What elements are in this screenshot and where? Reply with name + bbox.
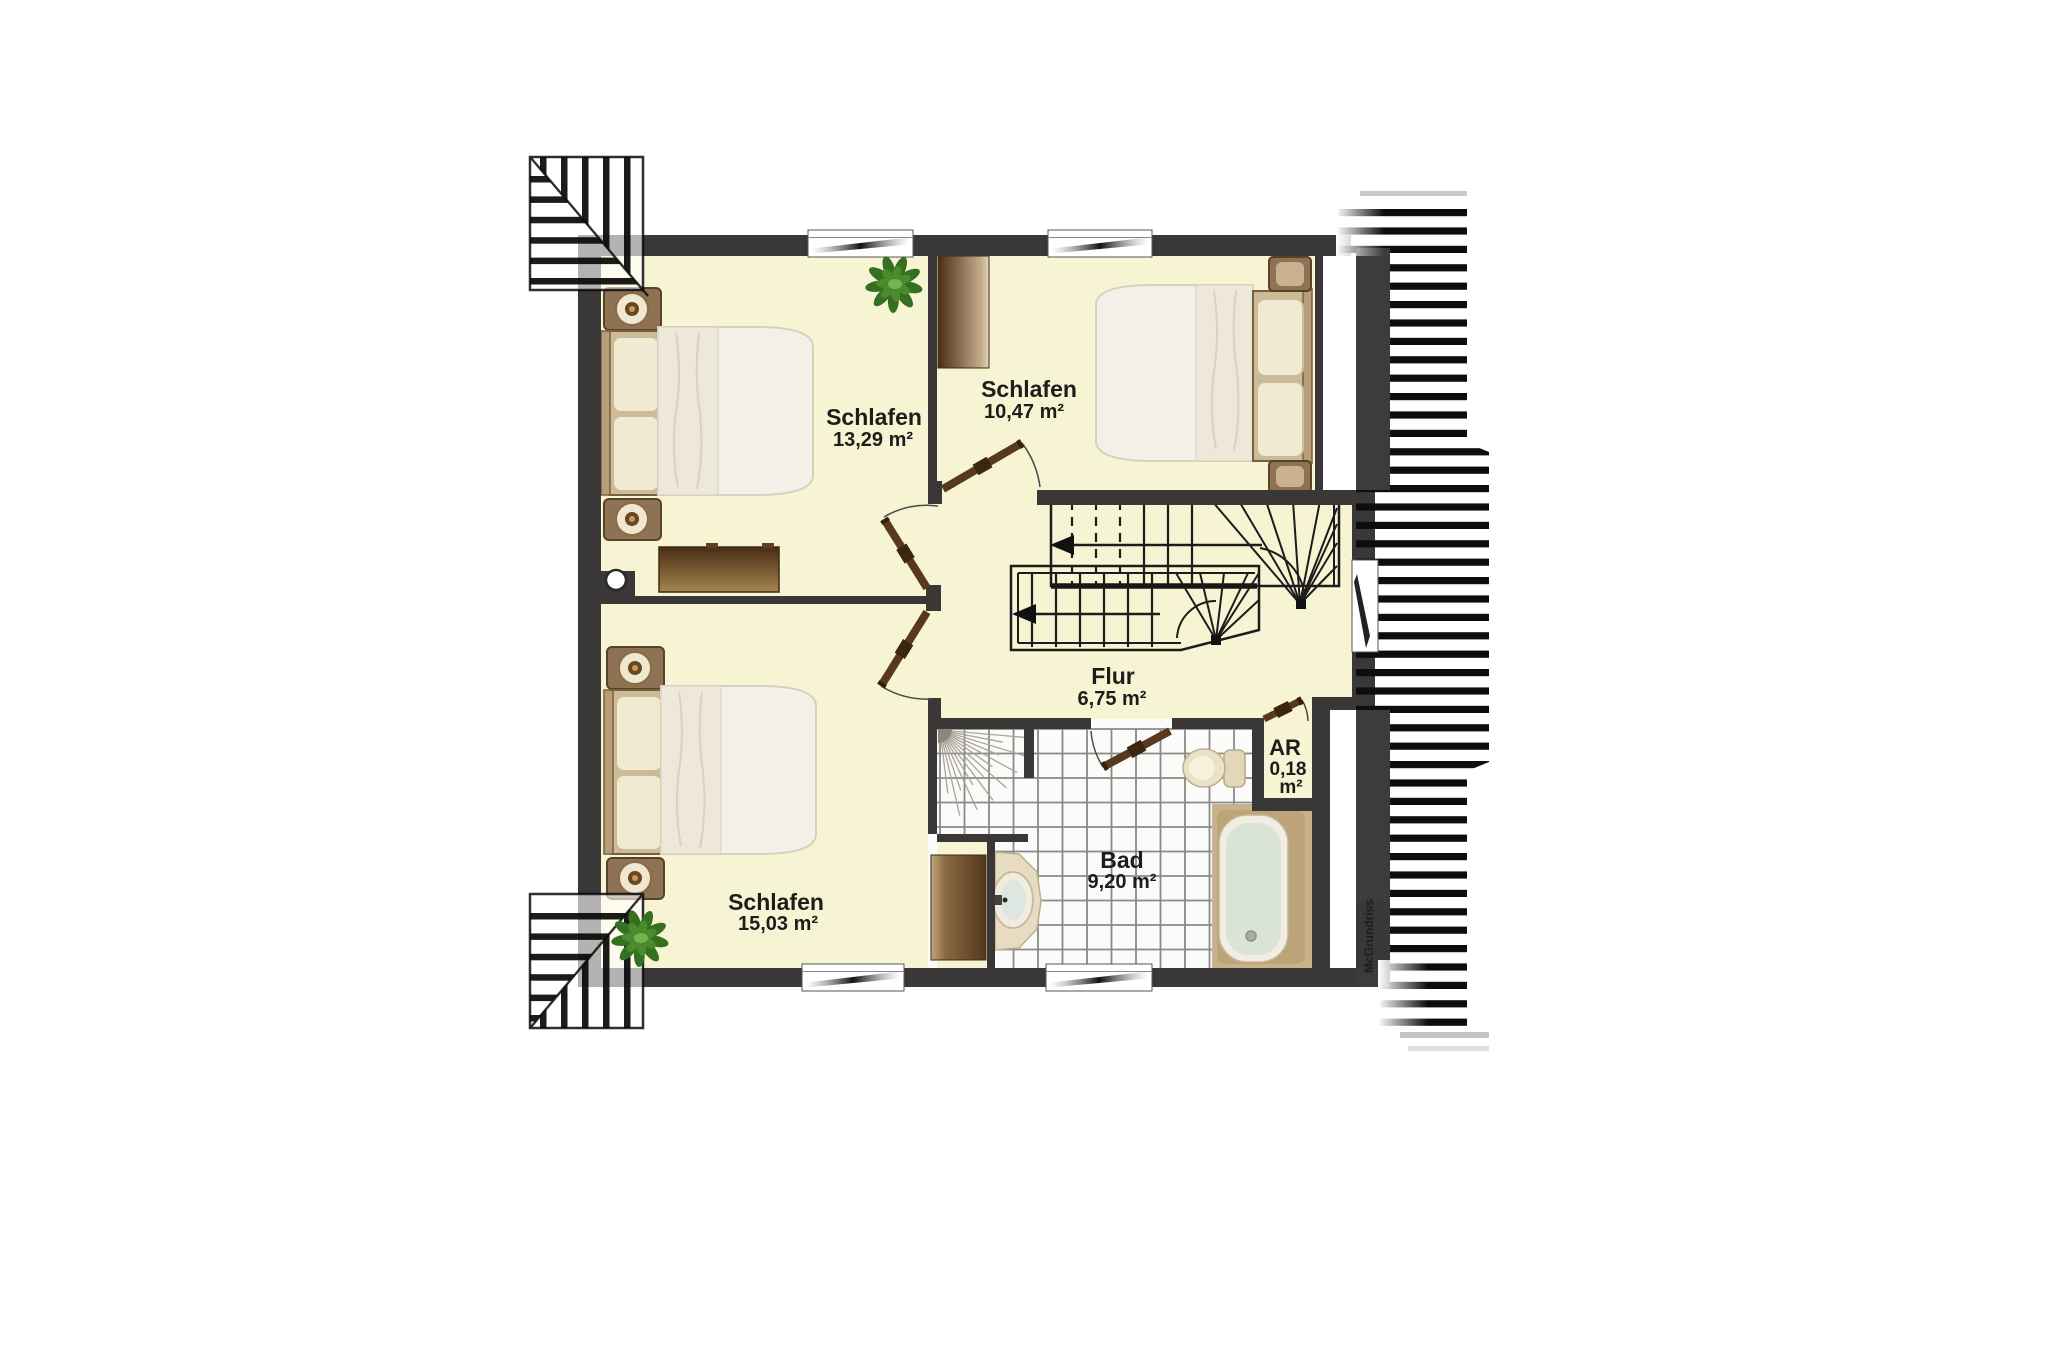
svg-text:AR: AR xyxy=(1269,735,1301,760)
svg-text:10,47 m²: 10,47 m² xyxy=(984,401,1064,423)
svg-text:Schlafen: Schlafen xyxy=(981,376,1077,402)
svg-text:6,75 m²: 6,75 m² xyxy=(1078,688,1147,710)
svg-text:Schlafen: Schlafen xyxy=(728,889,824,915)
svg-text:McGrundriss: McGrundriss xyxy=(1362,899,1376,973)
svg-text:Bad: Bad xyxy=(1100,847,1143,873)
svg-text:9,20 m²: 9,20 m² xyxy=(1088,871,1157,893)
svg-text:m²: m² xyxy=(1279,777,1302,798)
svg-text:Schlafen: Schlafen xyxy=(826,404,922,430)
svg-text:13,29 m²: 13,29 m² xyxy=(833,429,913,451)
svg-text:Flur: Flur xyxy=(1091,663,1134,689)
svg-text:15,03 m²: 15,03 m² xyxy=(738,913,818,935)
